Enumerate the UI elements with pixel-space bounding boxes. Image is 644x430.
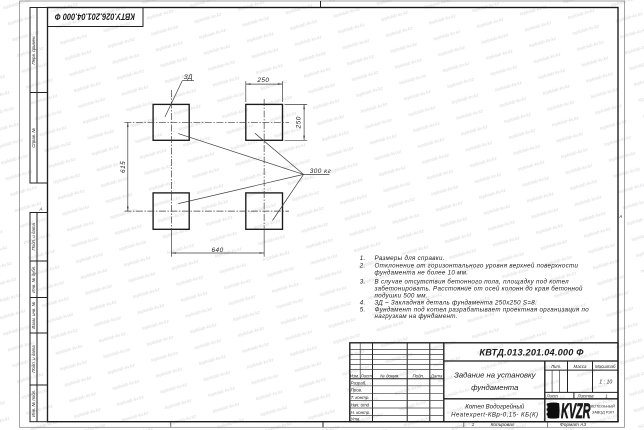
svg-text:640: 640	[212, 247, 224, 254]
svg-text:Котел Водогрейный: Котел Водогрейный	[465, 404, 525, 411]
svg-text:Дата: Дата	[430, 373, 443, 378]
svg-text:КВТУ.026.201.04.000 Ф: КВТУ.026.201.04.000 Ф	[55, 12, 135, 22]
svg-text:Масштаб: Масштаб	[595, 364, 616, 369]
svg-text:Масса: Масса	[574, 364, 588, 369]
svg-text:Лист: Лист	[360, 373, 373, 378]
svg-text:5.: 5.	[360, 307, 366, 314]
svg-text:Копировал: Копировал	[491, 422, 515, 428]
svg-text:1.: 1.	[360, 255, 366, 262]
svg-text:Формат А3: Формат А3	[560, 422, 587, 428]
svg-text:Подп. и дата: Подп. и дата	[31, 223, 36, 251]
svg-text:КОТЕЛЬНЫЙ: КОТЕЛЬНЫЙ	[591, 404, 615, 408]
svg-text:ЗАВОД РЭП: ЗАВОД РЭП	[592, 410, 614, 414]
svg-text:нагрузкам на фундамент.: нагрузкам на фундамент.	[375, 313, 458, 320]
svg-text:Задание на установку: Задание на установку	[454, 370, 537, 379]
svg-text:1: 1	[472, 422, 475, 428]
svg-text:А: А	[618, 214, 622, 219]
svg-text:250: 250	[256, 77, 269, 84]
svg-text:KVZR: KVZR	[561, 400, 591, 423]
svg-text:подушки 500 мм.: подушки 500 мм.	[375, 292, 428, 299]
svg-text:Н. контр.: Н. контр.	[351, 410, 371, 415]
svg-text:300 кг: 300 кг	[310, 168, 332, 175]
svg-text:А: А	[39, 207, 43, 212]
svg-text:В случае отсутствия бетонного: В случае отсутствия бетонного пола, площ…	[375, 278, 570, 285]
svg-text:Лист: Лист	[546, 393, 559, 398]
svg-text:2.: 2.	[359, 263, 366, 270]
svg-text:Утв.: Утв.	[351, 417, 361, 422]
svg-text:Пров.: Пров.	[351, 388, 363, 393]
svg-text:фундамента: фундамента	[471, 383, 519, 392]
svg-text:Инв. № подл.: Инв. № подл.	[31, 390, 36, 417]
svg-text:Перв. примен.: Перв. примен.	[31, 35, 36, 64]
svg-text:фундамента не более 10 мм.: фундамента не более 10 мм.	[375, 269, 469, 276]
svg-text:Лит.: Лит.	[550, 364, 561, 369]
svg-text:ЗД: ЗД	[184, 74, 193, 81]
svg-text:Инв. № дубл.: Инв. № дубл.	[31, 266, 36, 293]
svg-text:Изм.: Изм.	[350, 373, 359, 378]
svg-text:Подп.: Подп.	[412, 373, 424, 378]
svg-text:Heatexpert-КВр-0,15- КБ(К): Heatexpert-КВр-0,15- КБ(К)	[451, 412, 538, 419]
svg-text:Справ. №: Справ. №	[31, 128, 36, 148]
svg-text:3.: 3.	[360, 278, 366, 285]
svg-text:Т. контр.: Т. контр.	[351, 395, 370, 400]
svg-text:Взам. инв. №: Взам. инв. №	[31, 301, 36, 328]
svg-text:№ докум.: № докум.	[380, 373, 399, 378]
svg-text:250: 250	[295, 116, 302, 129]
svg-text:1 : 10: 1 : 10	[599, 380, 612, 386]
svg-text:Размеры для справки.: Размеры для справки.	[375, 255, 445, 262]
svg-text:Разраб.: Разраб.	[351, 380, 367, 385]
svg-text:КВТД.013.201.04.000 Ф: КВТД.013.201.04.000 Ф	[479, 347, 584, 357]
svg-text:Подп. и дата: Подп. и дата	[31, 345, 36, 373]
svg-text:Нач. отд: Нач. отд	[351, 402, 370, 407]
svg-text:615: 615	[120, 161, 127, 173]
svg-text:Листов: Листов	[577, 393, 595, 398]
